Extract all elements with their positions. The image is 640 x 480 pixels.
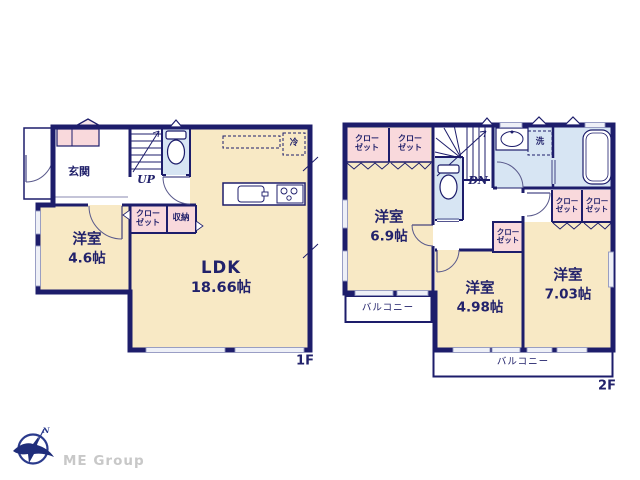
closet-label-c: クロー ゼット bbox=[497, 229, 520, 246]
balcony-label-left: バルコニー bbox=[362, 304, 414, 315]
closet-label-d: クロー ゼット bbox=[556, 198, 579, 215]
room-label-bedroom498: 洋室 bbox=[466, 281, 495, 297]
room-bedroom1-fill bbox=[38, 205, 130, 292]
stove-icon bbox=[277, 185, 303, 203]
closet-label-line2: ゼット bbox=[497, 237, 520, 245]
floor2-plan bbox=[343, 117, 614, 377]
hall-2f-fill2 bbox=[435, 218, 493, 250]
shoe-cabinet bbox=[57, 129, 99, 146]
closet-label-b: クロー ゼット bbox=[398, 135, 422, 153]
room-label-ldk: LDK bbox=[201, 259, 241, 277]
room-size-bedroom69: 6.9帖 bbox=[370, 229, 407, 244]
closet-label-1f: クロー ゼット bbox=[136, 210, 160, 228]
compass-north-label: N bbox=[43, 427, 50, 435]
vent-triangle-icon bbox=[170, 120, 182, 127]
fridge-label: 冷 bbox=[290, 139, 299, 149]
stairs-down-label: DN bbox=[468, 175, 488, 187]
room-size-bedroom498: 4.98帖 bbox=[457, 300, 504, 315]
toilet-icon bbox=[166, 131, 186, 164]
closet-label-a: クロー ゼット bbox=[355, 135, 379, 153]
closet-label-line2: ゼット bbox=[398, 144, 422, 153]
vanity-sink-icon bbox=[496, 128, 528, 150]
entrance-porch bbox=[24, 128, 53, 199]
stairs-up-label: UP bbox=[137, 174, 155, 186]
closet-label-line2: ゼット bbox=[355, 144, 379, 153]
floor1-plan bbox=[24, 119, 318, 353]
closet-label-e: クロー ゼット bbox=[586, 198, 609, 215]
room-label-bedroom703: 洋室 bbox=[554, 268, 583, 284]
company-logo-text: ME Group bbox=[63, 453, 145, 469]
balcony-label-right: バルコニー bbox=[497, 358, 549, 369]
room-size-bedroom703: 7.03帖 bbox=[545, 287, 592, 302]
toilet-icon bbox=[438, 165, 459, 199]
room-label-bedroom69: 洋室 bbox=[375, 210, 404, 226]
floorplan-canvas: 玄関 洋室 4.6帖 クロー ゼット 収納 UP 冷 LDK 18.66帖 1F… bbox=[0, 0, 640, 480]
bathtub-icon bbox=[583, 130, 611, 184]
kitchen-sink-icon bbox=[238, 186, 264, 202]
room-label-bedroom1: 洋室 bbox=[73, 232, 102, 248]
closet-label-line2: ゼット bbox=[586, 206, 609, 214]
room-size-ldk: 18.66帖 bbox=[191, 280, 251, 296]
faucet-icon bbox=[262, 192, 268, 196]
closet-label-line2: ゼット bbox=[556, 206, 579, 214]
room-size-bedroom1: 4.6帖 bbox=[68, 251, 105, 266]
room-label-entrance: 玄関 bbox=[68, 166, 90, 178]
floor-label-1f: 1F bbox=[296, 355, 314, 370]
kitchen-counter-icon bbox=[223, 183, 305, 205]
laundry-label: 洗 bbox=[536, 138, 545, 148]
storage-label: 収納 bbox=[172, 214, 189, 224]
floor-label-2f: 2F bbox=[598, 380, 616, 395]
closet-label-line2: ゼット bbox=[136, 219, 160, 228]
